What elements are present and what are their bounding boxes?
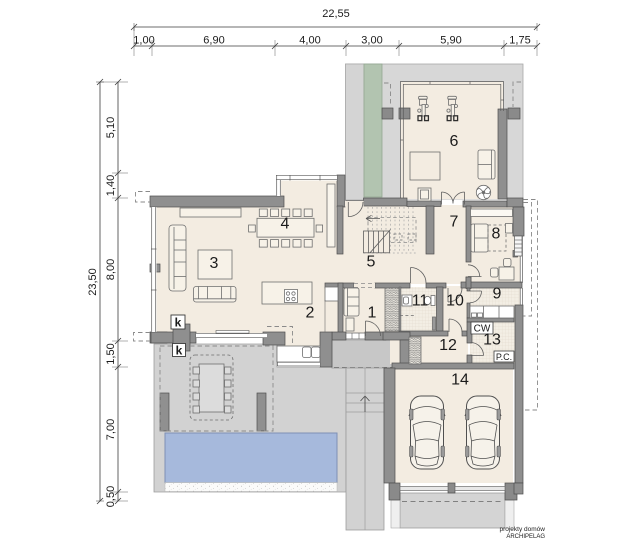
svg-text:22,55: 22,55 bbox=[322, 8, 350, 20]
svg-text:4,00: 4,00 bbox=[299, 35, 320, 47]
svg-text:3: 3 bbox=[210, 255, 219, 272]
svg-text:5: 5 bbox=[367, 254, 376, 271]
svg-text:ARCHIPELAG: ARCHIPELAG bbox=[506, 534, 545, 540]
svg-text:1,00: 1,00 bbox=[133, 35, 154, 47]
svg-text:0,50: 0,50 bbox=[105, 486, 117, 507]
svg-text:k: k bbox=[176, 344, 183, 358]
svg-text:6: 6 bbox=[450, 133, 459, 150]
svg-text:CW: CW bbox=[474, 324, 491, 335]
svg-text:23,50: 23,50 bbox=[87, 268, 99, 296]
svg-text:10: 10 bbox=[446, 293, 464, 310]
svg-text:1,75: 1,75 bbox=[509, 35, 530, 47]
svg-text:5,10: 5,10 bbox=[105, 117, 117, 138]
svg-text:8,00: 8,00 bbox=[105, 259, 117, 280]
svg-text:11: 11 bbox=[412, 293, 429, 310]
svg-text:2: 2 bbox=[306, 305, 315, 322]
svg-text:12: 12 bbox=[439, 337, 457, 354]
svg-text:8: 8 bbox=[492, 226, 501, 243]
svg-text:4: 4 bbox=[281, 216, 290, 233]
svg-text:1: 1 bbox=[368, 305, 377, 322]
svg-text:1,40: 1,40 bbox=[105, 175, 117, 196]
svg-text:7: 7 bbox=[450, 214, 459, 231]
svg-text:6,90: 6,90 bbox=[203, 35, 224, 47]
svg-text:3,00: 3,00 bbox=[361, 35, 382, 47]
svg-text:5,90: 5,90 bbox=[440, 35, 461, 47]
svg-text:P.C.: P.C. bbox=[496, 352, 512, 362]
svg-text:9: 9 bbox=[493, 286, 502, 303]
svg-text:14: 14 bbox=[451, 372, 469, 389]
svg-text:k: k bbox=[175, 316, 182, 330]
svg-text:7,00: 7,00 bbox=[105, 419, 117, 440]
svg-text:1,50: 1,50 bbox=[105, 343, 117, 364]
svg-text:projekty domów: projekty domów bbox=[499, 526, 545, 533]
